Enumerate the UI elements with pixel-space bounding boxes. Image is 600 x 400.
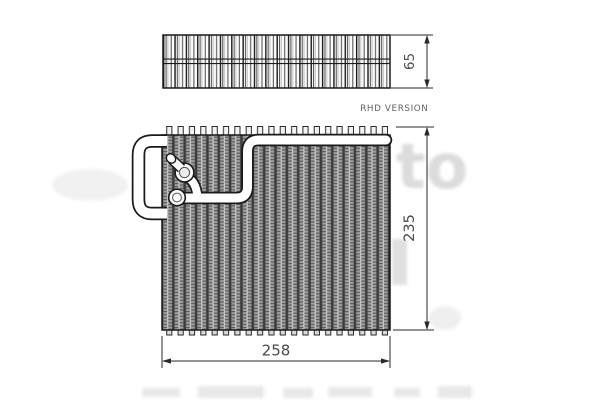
- watermark-blob: [52, 169, 128, 201]
- watermark-text: to: [396, 130, 468, 203]
- upper-port-bore: [179, 167, 189, 177]
- front-view: [139, 126, 391, 336]
- version-note: RHD VERSION: [360, 104, 428, 114]
- watermark-blob: [429, 306, 461, 330]
- tube-tabs-bottom: [164, 331, 388, 337]
- watermark-bottom-row: [142, 386, 472, 398]
- depth-dimension-label: 65: [402, 53, 418, 70]
- technical-drawing-page: to 65 RHD VERSION: [0, 0, 600, 400]
- lower-port-bore: [173, 193, 182, 202]
- arrowhead-left-icon: [162, 358, 171, 363]
- watermark-blob: [392, 239, 407, 285]
- arrowhead-right-icon: [381, 358, 390, 363]
- height-dimension-label: 235: [402, 214, 418, 242]
- top-view-body: [163, 35, 390, 88]
- evaporator-core: [162, 135, 390, 330]
- arrowhead-up-icon: [424, 35, 429, 44]
- lower-port-fitting: [169, 189, 186, 206]
- evaporator-drawing: to 65 RHD VERSION: [0, 0, 600, 400]
- arrowhead-down-icon: [424, 80, 429, 89]
- arrowhead-down-icon: [424, 322, 429, 331]
- width-dimension-label: 258: [262, 342, 291, 360]
- top-view: [163, 35, 390, 88]
